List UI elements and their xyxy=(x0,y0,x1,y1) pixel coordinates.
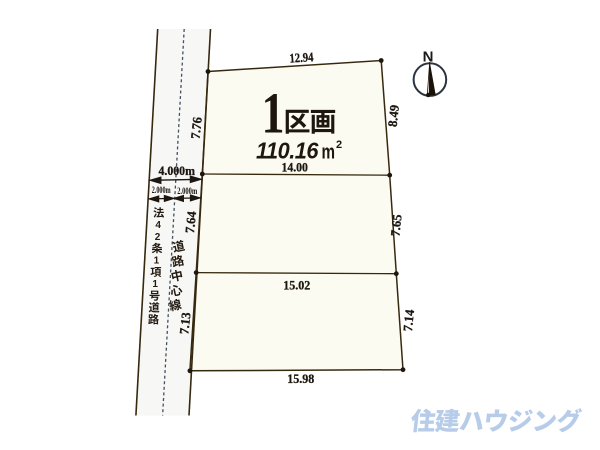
svg-text:15.02: 15.02 xyxy=(283,278,310,293)
svg-text:m: m xyxy=(322,142,336,164)
svg-text:1: 1 xyxy=(154,256,160,267)
svg-text:1: 1 xyxy=(152,279,158,290)
svg-text:7.14: 7.14 xyxy=(400,308,417,332)
svg-text:7.64: 7.64 xyxy=(182,210,199,234)
svg-text:2: 2 xyxy=(155,232,161,243)
svg-text:7.65: 7.65 xyxy=(387,213,404,237)
svg-text:8.49: 8.49 xyxy=(385,104,402,128)
svg-text:1: 1 xyxy=(262,81,285,146)
svg-text:2.000m: 2.000m xyxy=(177,186,197,196)
svg-text:2: 2 xyxy=(336,139,342,151)
svg-text:2.000m: 2.000m xyxy=(152,185,171,195)
svg-text:4: 4 xyxy=(155,220,161,231)
svg-text:7.76: 7.76 xyxy=(188,116,205,140)
svg-text:110.16: 110.16 xyxy=(256,138,319,164)
svg-text:15.98: 15.98 xyxy=(287,371,314,386)
svg-text:12.94: 12.94 xyxy=(289,49,314,65)
svg-text:7.13: 7.13 xyxy=(176,311,193,335)
svg-text:N: N xyxy=(423,49,434,66)
